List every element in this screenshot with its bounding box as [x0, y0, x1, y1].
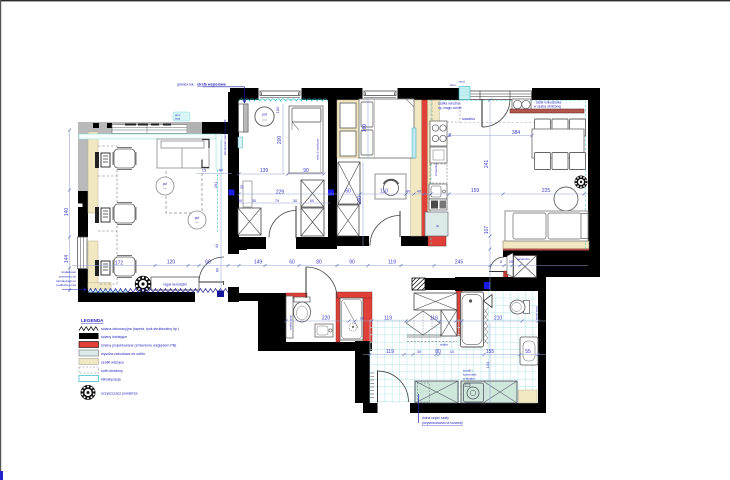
- svg-text:oczyszczacz powietrza: oczyszczacz powietrza: [101, 392, 138, 396]
- svg-text:104: 104: [485, 361, 490, 368]
- svg-text:klimatyzacji po: klimatyzacji po: [56, 279, 76, 283]
- svg-text:np. magic corner: np. magic corner: [438, 106, 463, 110]
- svg-text:140: 140: [64, 208, 70, 217]
- svg-text:klimatyzacja: klimatyzacja: [101, 378, 121, 382]
- svg-text:30: 30: [252, 198, 257, 203]
- svg-text:szafki wiszące: szafki wiszące: [101, 361, 124, 365]
- svg-text:119: 119: [388, 260, 396, 266]
- svg-text:30: 30: [238, 198, 243, 203]
- svg-text:ściany istniejące: ściany istniejące: [101, 335, 127, 339]
- svg-text:159: 159: [471, 188, 480, 194]
- svg-text:139: 139: [260, 168, 269, 174]
- svg-text:200: 200: [277, 136, 283, 145]
- svg-text:ch.: ch.: [436, 224, 440, 228]
- svg-text:stelaż podt.: stelaż podt.: [535, 305, 539, 320]
- svg-text:30: 30: [293, 198, 298, 203]
- svg-text:119: 119: [384, 316, 392, 322]
- svg-text:sofa 3-osobowa: sofa 3-osobowa: [316, 138, 320, 160]
- svg-text:80: 80: [215, 267, 220, 272]
- svg-text:25: 25: [509, 259, 514, 264]
- svg-text:pion: pion: [450, 83, 456, 87]
- svg-text:144: 144: [64, 255, 70, 264]
- svg-text:110: 110: [380, 189, 388, 195]
- svg-text:384: 384: [512, 130, 521, 136]
- svg-text:281: 281: [213, 181, 218, 188]
- svg-text:149: 149: [254, 260, 263, 266]
- svg-text:dolna część szafy: dolna część szafy: [422, 416, 449, 420]
- svg-text:ściany projektowane (zmienione: ściany projektowane (zmienione względem …: [101, 344, 176, 348]
- svg-text:w słupku: w słupku: [463, 377, 475, 381]
- svg-text:155: 155: [486, 349, 495, 355]
- svg-text:107: 107: [484, 226, 490, 235]
- svg-text:80: 80: [435, 349, 441, 355]
- svg-text:w szafce obniżonej: w szafce obniżonej: [534, 105, 561, 109]
- svg-text:suszarka: suszarka: [462, 117, 475, 121]
- svg-text:przewody do: przewody do: [59, 274, 76, 278]
- svg-text:ściana dekoracyjna (tapeta, ty: ściana dekoracyjna (tapeta, tynk struktu…: [101, 327, 179, 331]
- svg-text:60: 60: [289, 260, 295, 266]
- svg-text:dodatkowe: dodatkowe: [61, 270, 76, 274]
- svg-text:wod.: wod.: [175, 117, 181, 121]
- svg-text:229: 229: [276, 190, 285, 196]
- svg-text:200: 200: [357, 196, 363, 205]
- svg-text:90: 90: [349, 260, 355, 266]
- svg-text:wysoka zabudowa do sufitu: wysoka zabudowa do sufitu: [101, 352, 145, 356]
- svg-text:puf: puf: [195, 216, 200, 220]
- svg-text:zmywarka: zmywarka: [434, 163, 438, 176]
- svg-text:przystosowana na rozwody: przystosowana na rozwody: [422, 421, 463, 425]
- svg-text:60: 60: [205, 260, 211, 266]
- svg-text:10: 10: [450, 349, 455, 354]
- svg-text:220: 220: [322, 316, 331, 322]
- svg-text:80: 80: [316, 260, 322, 266]
- svg-text:60: 60: [310, 198, 315, 203]
- svg-text:225: 225: [542, 188, 551, 194]
- svg-text:90: 90: [303, 168, 309, 174]
- svg-text:LEGENDA: LEGENDA: [81, 318, 104, 323]
- svg-text:120: 120: [167, 260, 176, 266]
- svg-text:245: 245: [455, 260, 464, 266]
- svg-text:30: 30: [417, 349, 422, 354]
- svg-text:strefa wejściowa: strefa wejściowa: [197, 83, 227, 87]
- svg-text:sufit obniżony: sufit obniżony: [101, 369, 123, 373]
- svg-text:79: 79: [275, 198, 280, 203]
- svg-text:klimatyzator kanałowy w zab.: klimatyzator kanałowy w zab.: [223, 119, 227, 155]
- svg-text:55: 55: [525, 349, 531, 355]
- svg-text:119: 119: [386, 349, 394, 355]
- svg-text:44: 44: [214, 243, 219, 248]
- svg-text:210: 210: [494, 316, 503, 322]
- svg-text:40: 40: [406, 189, 411, 194]
- svg-text:podłodze poza: podłodze poza: [56, 283, 76, 287]
- svg-text:15: 15: [202, 168, 207, 173]
- svg-text:241: 241: [484, 160, 490, 169]
- svg-text:40: 40: [219, 168, 224, 173]
- svg-text:siatka: siatka: [440, 343, 448, 347]
- svg-text:garderoba: garderoba: [517, 257, 530, 261]
- svg-text:granica lok.: granica lok.: [177, 83, 194, 87]
- svg-text:116: 116: [430, 316, 438, 322]
- svg-text:180: 180: [275, 106, 280, 113]
- svg-text:wod.: wod.: [459, 80, 466, 84]
- svg-text:szafka gosp.: szafka gosp.: [289, 314, 293, 330]
- svg-text:puf: puf: [163, 182, 168, 186]
- svg-text:puf: puf: [262, 113, 267, 117]
- svg-text:160: 160: [362, 124, 368, 133]
- svg-text:regał na książki: regał na książki: [163, 283, 187, 287]
- svg-text:30: 30: [239, 184, 244, 189]
- svg-text:10: 10: [360, 316, 365, 321]
- svg-text:40: 40: [417, 189, 422, 194]
- svg-text:60: 60: [345, 189, 351, 195]
- svg-text:60: 60: [447, 132, 452, 137]
